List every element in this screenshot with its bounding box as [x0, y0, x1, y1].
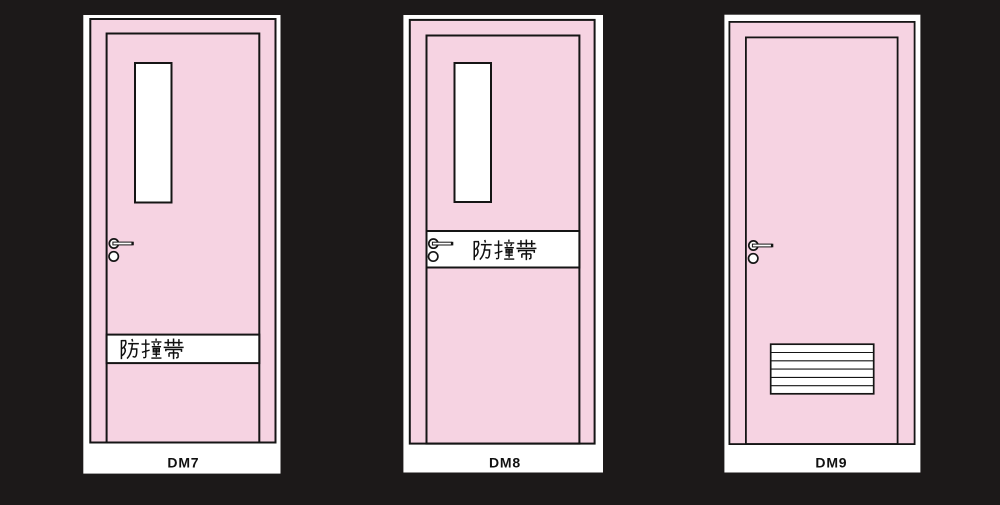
svg-text:DM9: DM9 [815, 455, 847, 471]
svg-text:DM7: DM7 [167, 455, 199, 471]
svg-text:DM8: DM8 [489, 455, 521, 471]
